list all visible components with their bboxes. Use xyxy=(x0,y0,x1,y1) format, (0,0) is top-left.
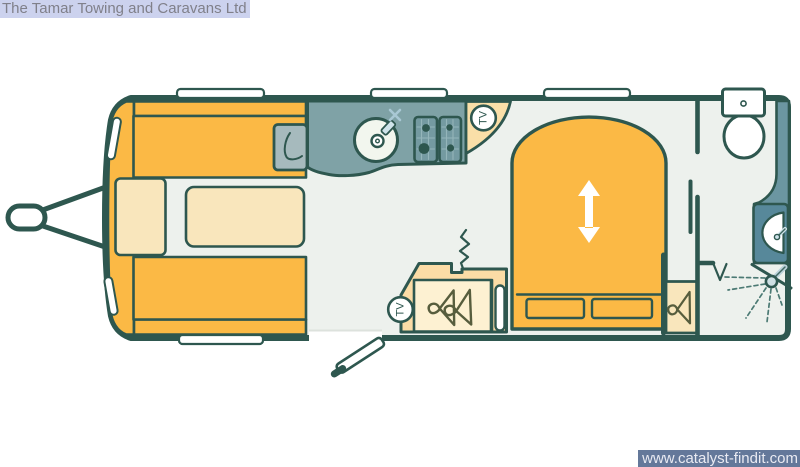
svg-text:TV: TV xyxy=(395,302,407,317)
svg-text:TV: TV xyxy=(478,110,490,125)
